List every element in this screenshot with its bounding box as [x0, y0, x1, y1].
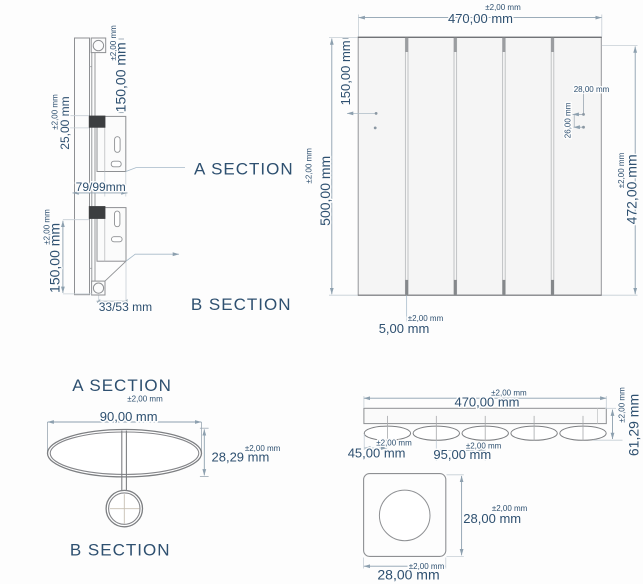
svg-text:±2,00 mm: ±2,00 mm	[466, 442, 502, 451]
svg-text:61,29 mm: 61,29 mm	[625, 394, 641, 456]
svg-text:±2,00 mm: ±2,00 mm	[43, 209, 52, 245]
svg-text:33/53 mm: 33/53 mm	[99, 300, 152, 314]
svg-text:±2,00 mm: ±2,00 mm	[305, 148, 314, 184]
svg-text:28,00 mm: 28,00 mm	[574, 85, 610, 94]
svg-text:±2,00 mm: ±2,00 mm	[376, 438, 412, 447]
svg-text:A SECTION: A SECTION	[72, 376, 172, 395]
svg-text:5,00 mm: 5,00 mm	[379, 321, 430, 336]
svg-text:B SECTION: B SECTION	[191, 295, 292, 314]
svg-text:±2,00 mm: ±2,00 mm	[409, 562, 445, 571]
svg-text:500,00 mm: 500,00 mm	[317, 156, 333, 226]
svg-text:±2,00 mm: ±2,00 mm	[485, 3, 521, 12]
svg-text:150,00 mm: 150,00 mm	[338, 40, 353, 105]
svg-text:79/99mm: 79/99mm	[76, 180, 126, 194]
svg-text:25,00 mm: 25,00 mm	[58, 96, 72, 149]
svg-text:±2,00 mm: ±2,00 mm	[245, 444, 281, 453]
svg-text:B SECTION: B SECTION	[70, 541, 171, 560]
svg-text:90,00 mm: 90,00 mm	[100, 409, 158, 424]
svg-text:±2,00 mm: ±2,00 mm	[618, 387, 627, 423]
svg-text:28,00 mm: 28,00 mm	[463, 511, 521, 526]
svg-text:45,00 mm: 45,00 mm	[348, 446, 406, 461]
svg-text:±2,00 mm: ±2,00 mm	[492, 504, 528, 513]
svg-text:±2,00 mm: ±2,00 mm	[109, 25, 118, 61]
svg-text:26,00 mm: 26,00 mm	[564, 102, 573, 138]
svg-text:±2,00 mm: ±2,00 mm	[617, 152, 626, 188]
svg-text:±2,00 mm: ±2,00 mm	[408, 314, 444, 323]
svg-text:±2,00 mm: ±2,00 mm	[127, 395, 163, 404]
svg-text:470,00 mm: 470,00 mm	[448, 11, 513, 26]
svg-text:±2,00 mm: ±2,00 mm	[491, 389, 527, 398]
svg-text:±2,00 mm: ±2,00 mm	[51, 94, 60, 130]
svg-text:A SECTION: A SECTION	[194, 160, 294, 179]
